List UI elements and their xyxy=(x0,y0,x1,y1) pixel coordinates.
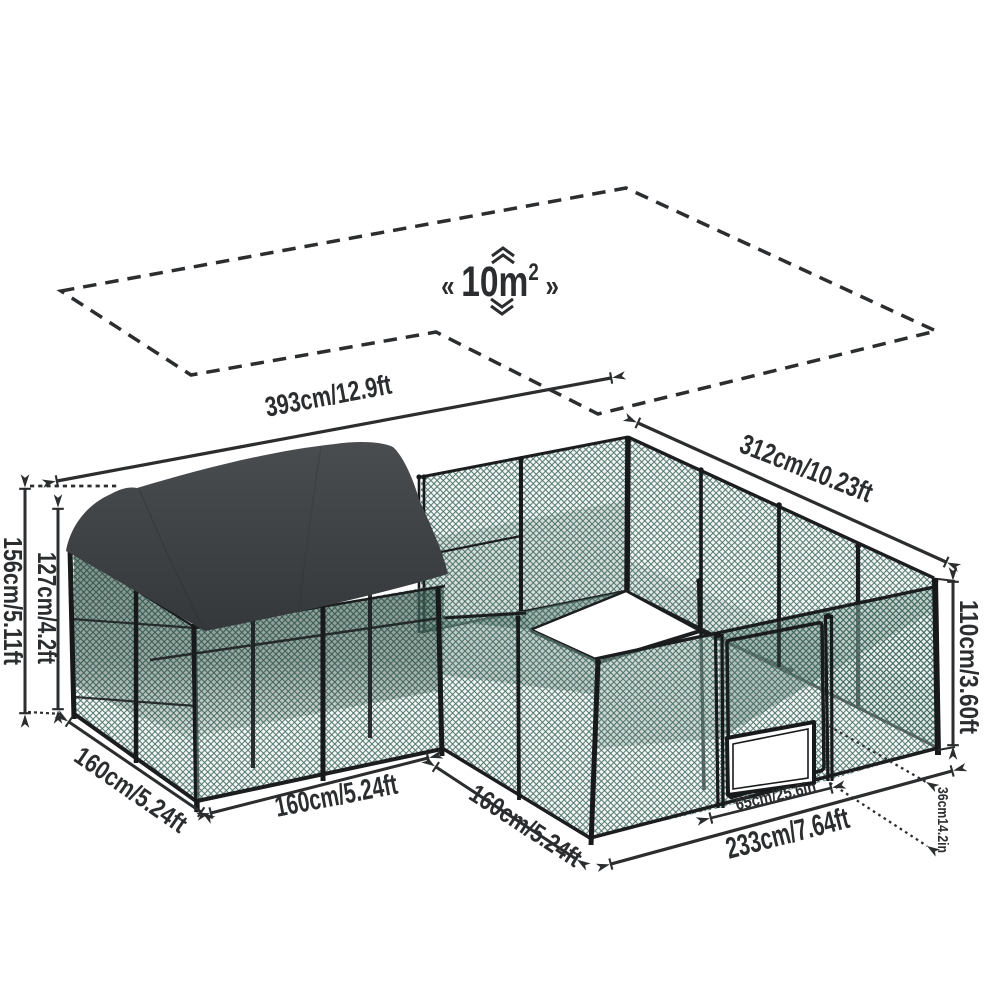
svg-text:36cm14.2in: 36cm14.2in xyxy=(934,787,951,853)
svg-text:393cm/12.9ft: 393cm/12.9ft xyxy=(262,369,394,423)
svg-text:156cm/5.11ft: 156cm/5.11ft xyxy=(0,537,28,665)
svg-text:« 10m2 »: « 10m2 » xyxy=(441,258,559,306)
svg-text:127cm/4.2ft: 127cm/4.2ft xyxy=(32,552,62,664)
svg-text:110cm/3.60ft: 110cm/3.60ft xyxy=(954,600,984,734)
